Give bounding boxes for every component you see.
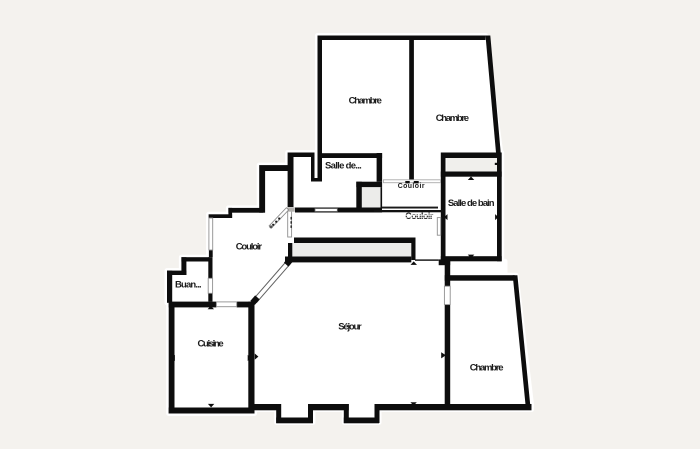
svg-text:Salle de...: Salle de... [325,160,362,171]
svg-text:Chambre: Chambre [470,363,504,374]
svg-text:Buan...: Buan... [175,279,202,290]
svg-text:Séjour: Séjour [338,322,362,333]
svg-text:Chambre: Chambre [349,95,382,106]
svg-text:Couloir: Couloir [405,211,434,221]
svg-text:Cuisine: Cuisine [198,338,224,349]
svg-text:Salle de bain: Salle de bain [448,198,495,209]
svg-text:Couloir: Couloir [236,241,263,252]
svg-text:Couloir: Couloir [398,183,425,190]
svg-text:Chambre: Chambre [436,113,469,124]
